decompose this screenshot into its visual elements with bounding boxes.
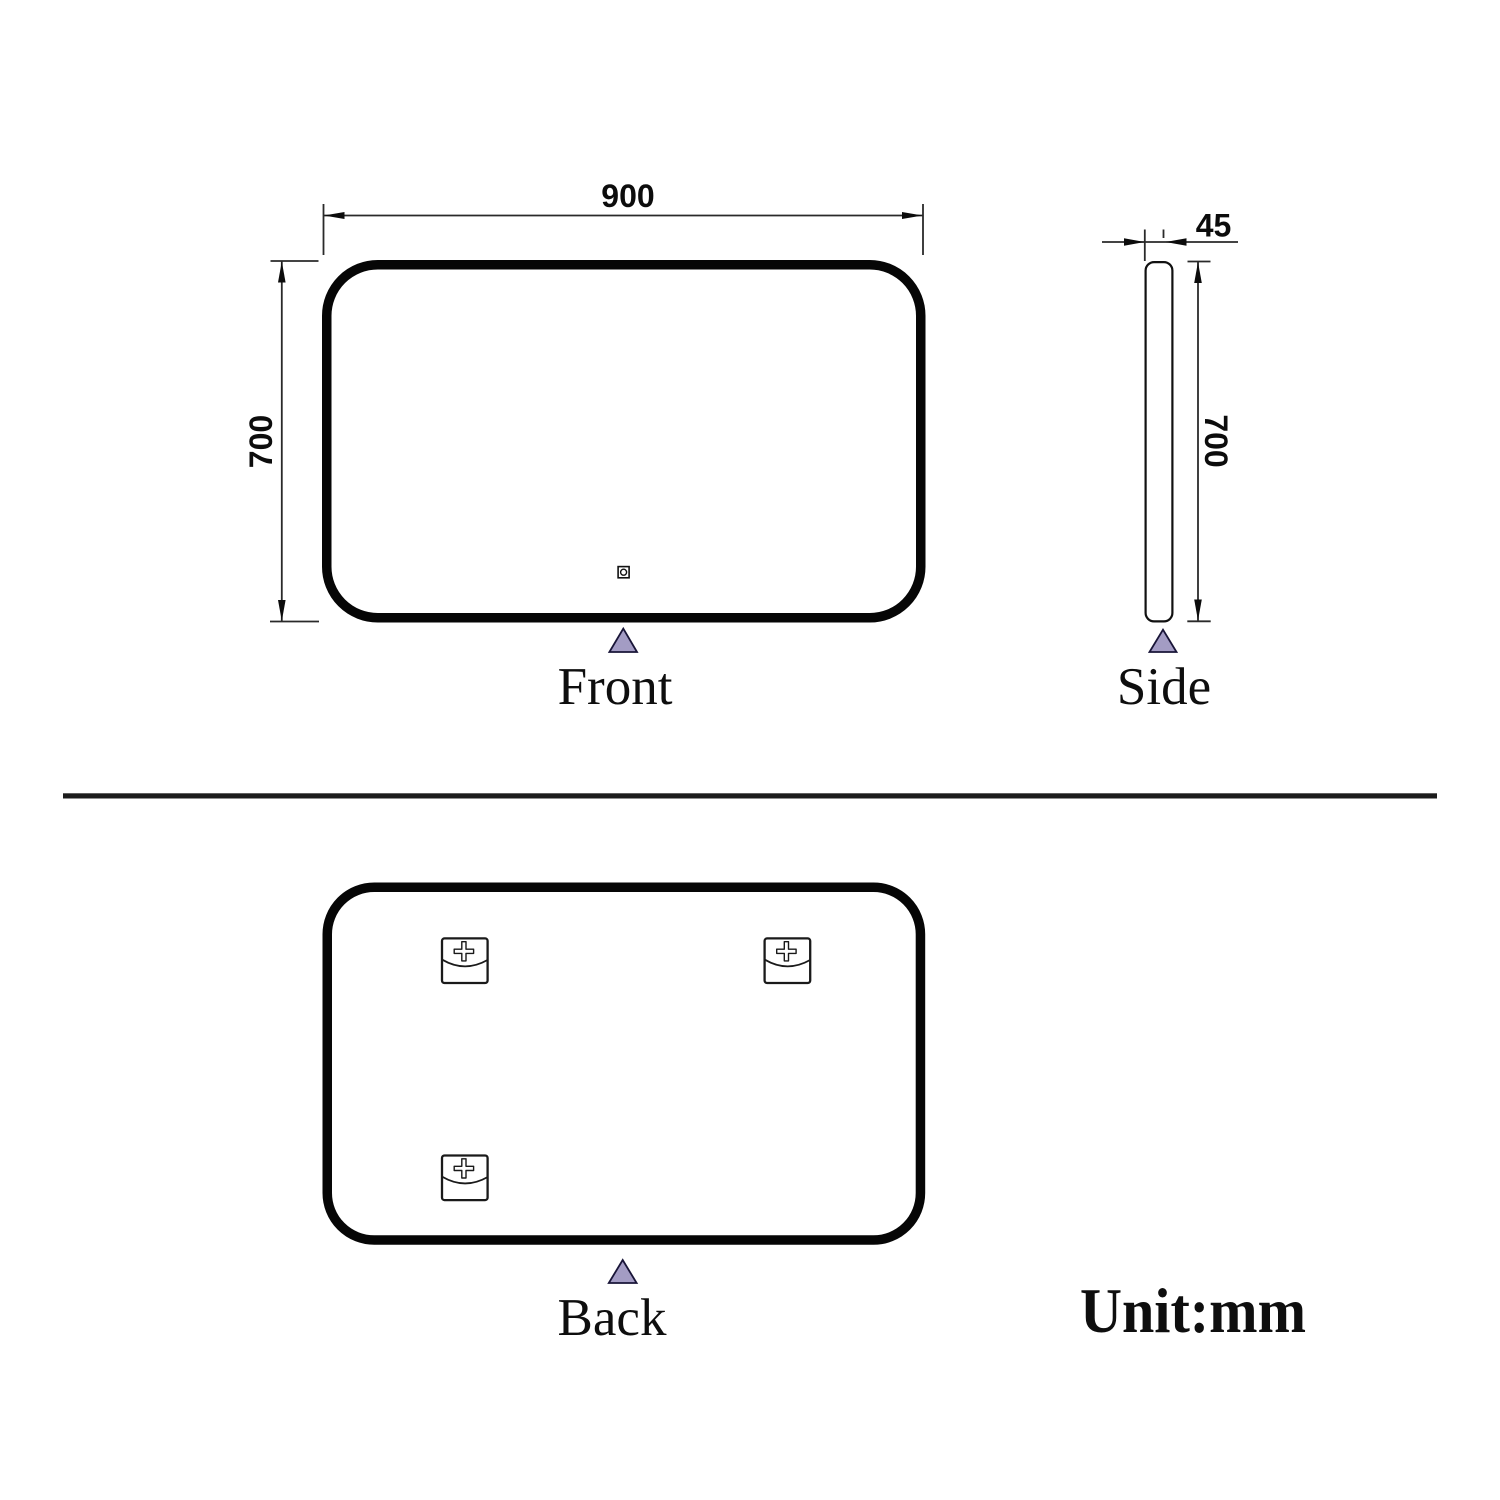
svg-text:Side: Side (1117, 658, 1211, 716)
svg-text:45: 45 (1196, 208, 1232, 244)
svg-text:Front: Front (558, 658, 673, 716)
svg-text:900: 900 (601, 178, 654, 214)
svg-text:700: 700 (1198, 414, 1234, 467)
svg-text:700: 700 (243, 415, 279, 468)
svg-text:Back: Back (558, 1289, 667, 1347)
svg-text:Unit:mm: Unit:mm (1080, 1275, 1306, 1346)
